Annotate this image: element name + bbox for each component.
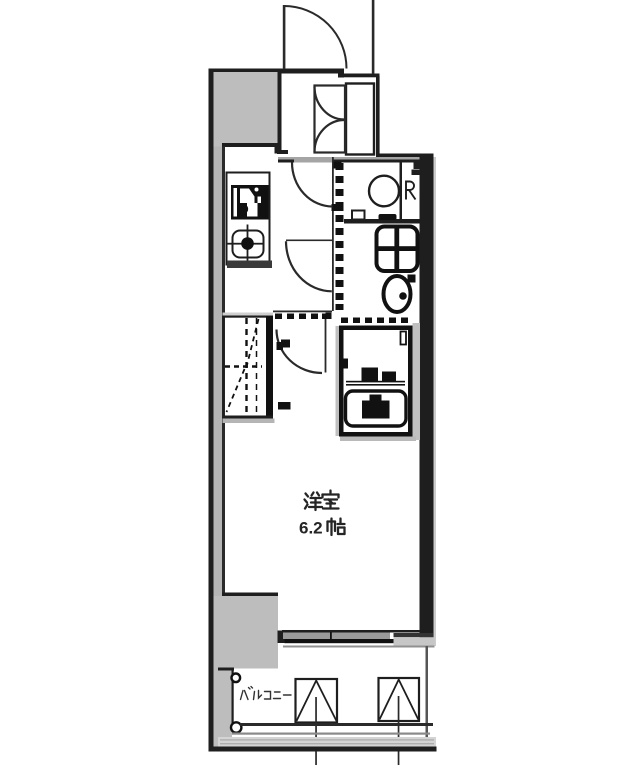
svg-text:6.2: 6.2 bbox=[299, 519, 323, 538]
